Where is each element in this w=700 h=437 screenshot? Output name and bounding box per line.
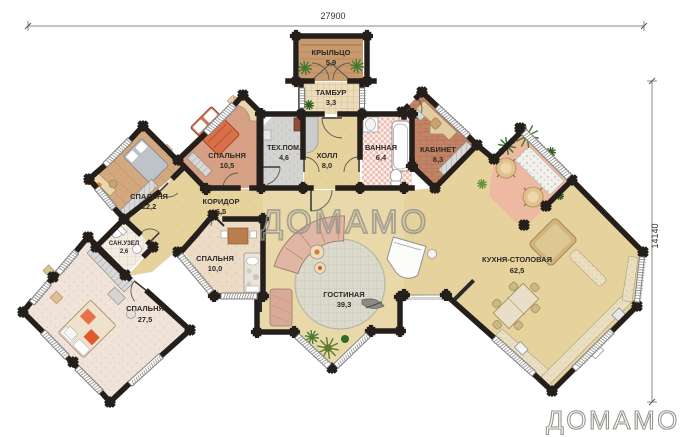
svg-text:СПАЛЬНЯ: СПАЛЬНЯ <box>196 254 234 263</box>
svg-text:8,0: 8,0 <box>322 161 332 170</box>
svg-text:КУХНЯ-СТОЛОВАЯ: КУХНЯ-СТОЛОВАЯ <box>482 255 552 264</box>
svg-text:3,3: 3,3 <box>326 98 336 107</box>
svg-text:ВАННАЯ: ВАННАЯ <box>365 143 397 152</box>
svg-text:8,3: 8,3 <box>433 155 443 164</box>
svg-text:СПАЛЬНЯ: СПАЛЬНЯ <box>130 192 168 201</box>
svg-text:СПАЛЬНЯ: СПАЛЬНЯ <box>126 304 164 313</box>
svg-text:6,4: 6,4 <box>376 153 387 162</box>
svg-text:39,3: 39,3 <box>337 300 352 309</box>
svg-text:КРЫЛЬЦО: КРЫЛЬЦО <box>312 48 351 57</box>
svg-text:12,2: 12,2 <box>142 202 157 211</box>
svg-text:ТАМБУР: ТАМБУР <box>316 88 347 97</box>
svg-text:ДОМАМО: ДОМАМО <box>546 405 680 435</box>
svg-text:4,6: 4,6 <box>279 155 289 162</box>
svg-text:ХОЛЛ: ХОЛЛ <box>317 151 338 160</box>
svg-text:14140: 14140 <box>650 223 660 248</box>
svg-text:САН.УЗЕЛ: САН.УЗЕЛ <box>109 241 139 247</box>
svg-text:5,9: 5,9 <box>326 58 336 67</box>
svg-text:КАБИНЕТ: КАБИНЕТ <box>420 145 456 154</box>
svg-text:КОРИДОР: КОРИДОР <box>203 197 240 206</box>
svg-text:ГОСТИНАЯ: ГОСТИНАЯ <box>323 290 364 299</box>
svg-text:10,0: 10,0 <box>208 264 223 273</box>
svg-text:СПАЛЬНЯ: СПАЛЬНЯ <box>208 151 246 160</box>
svg-text:27,5: 27,5 <box>138 315 153 324</box>
svg-text:ТЕХ.ПОМ.: ТЕХ.ПОМ. <box>267 145 301 152</box>
svg-text:2,6: 2,6 <box>120 249 129 255</box>
svg-text:ДОМАМО: ДОМАМО <box>261 203 430 240</box>
svg-text:27900: 27900 <box>320 11 345 21</box>
svg-text:10,5: 10,5 <box>220 161 235 170</box>
svg-text:62,5: 62,5 <box>510 266 525 275</box>
svg-text:6,5: 6,5 <box>216 207 226 216</box>
